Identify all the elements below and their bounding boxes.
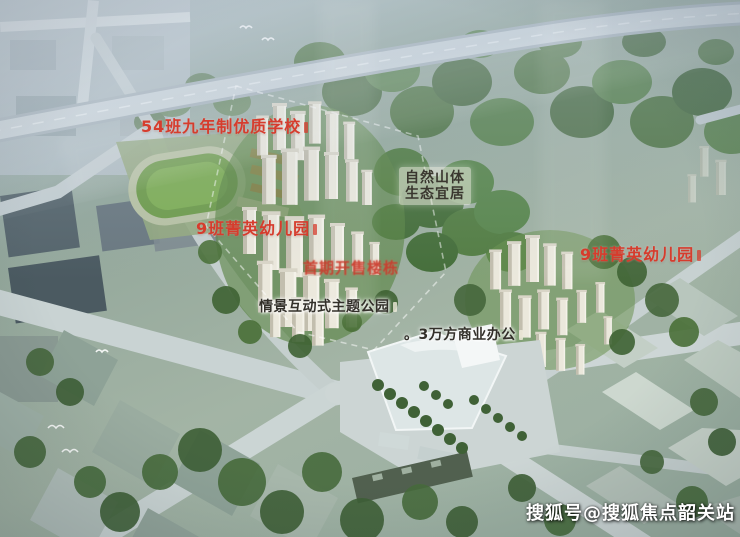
commerce-stamp <box>519 330 523 340</box>
watermark: 搜狐号@搜狐焦点韶关站 <box>526 504 735 525</box>
nature-label-line1: 自然山体 <box>405 170 465 186</box>
school-label-stamp <box>304 122 308 133</box>
watermark-text: 搜狐号@搜狐焦点韶关站 <box>526 503 735 524</box>
kindergarten-left-label: 9班菁英幼儿园 <box>196 220 317 238</box>
kindergarten-left-text: 9班菁英幼儿园 <box>196 219 310 238</box>
first-phase-label: 首期开售楼栋 <box>303 260 399 277</box>
nature-label: 自然山体 生态宜居 <box>399 167 471 205</box>
kindergarten-left-stamp <box>313 224 317 235</box>
first-phase-text: 首期开售楼栋 <box>303 259 399 277</box>
theme-park-label: 情景互动式主题公园 <box>259 299 397 315</box>
kindergarten-right-label: 9班菁英幼儿园 <box>580 246 701 264</box>
commerce-label: 。3万方商业办公 <box>404 327 523 343</box>
theme-park-stamp <box>393 302 397 312</box>
aerial-rendering: 54班九年制优质学校 9班菁英幼儿园 首期开售楼栋 情景互动式主题公园 自然山体… <box>0 0 740 537</box>
kindergarten-right-stamp <box>697 250 701 261</box>
school-label: 54班九年制优质学校 <box>141 118 308 136</box>
nature-label-line2: 生态宜居 <box>405 186 465 202</box>
kindergarten-right-text: 9班菁英幼儿园 <box>580 245 694 264</box>
commerce-text: 。3万方商业办公 <box>404 327 516 343</box>
theme-park-text: 情景互动式主题公园 <box>259 299 390 315</box>
school-label-text: 54班九年制优质学校 <box>141 117 301 136</box>
